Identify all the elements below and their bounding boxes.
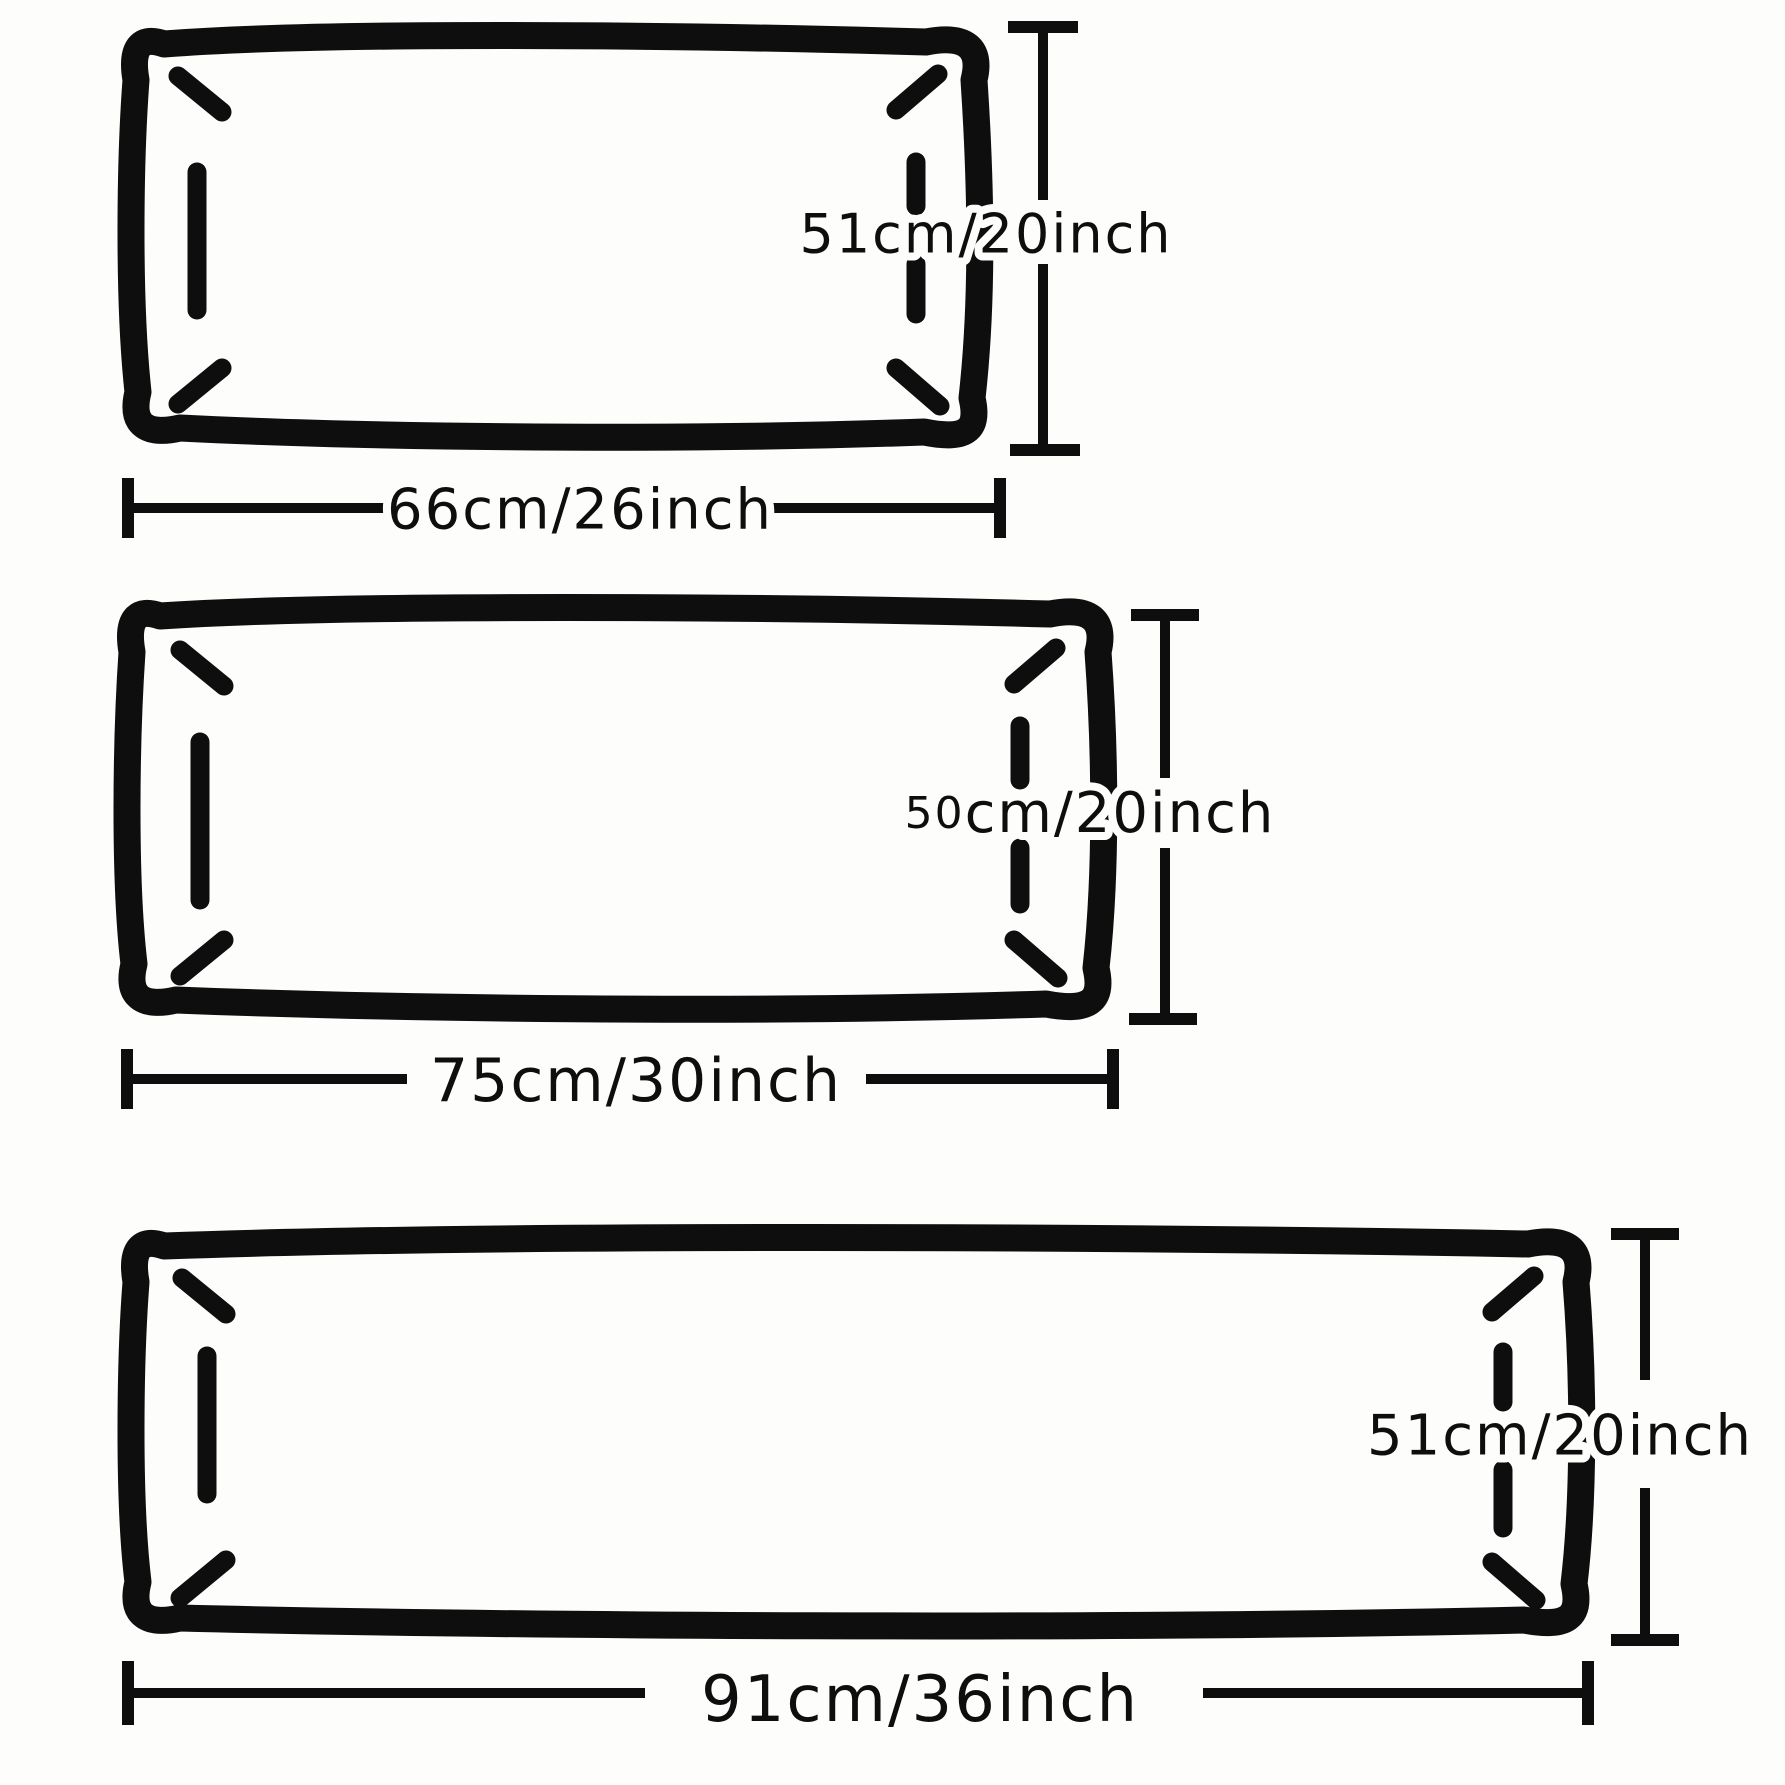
pillow-size-diagram: 51cm/20inch 66cm/26inch 50cm/20inch 75cm…: [0, 0, 1785, 1785]
pillow-3-height-dimension: 51cm/20inch: [1367, 1234, 1753, 1640]
pillow-2-width-label: 75cm/30inch: [430, 1046, 842, 1116]
pillow-1-width-dimension: 66cm/26inch: [128, 478, 1000, 543]
pillow-2-corner-tick-top-right: [1014, 648, 1056, 684]
pillow-3-width-label: 91cm/36inch: [701, 1663, 1139, 1737]
pillow-2-corner-tick-top-left: [180, 650, 224, 686]
pillow-2-corner-tick-bottom-left: [180, 940, 224, 976]
pillow-3-corner-tick-top-left: [182, 1278, 226, 1314]
pillow-1-corner-tick-bottom-left: [178, 368, 222, 404]
pillow-2-corner-tick-bottom-right: [1014, 940, 1058, 978]
pillow-3-width-dimension: 91cm/36inch: [128, 1661, 1588, 1737]
pillow-1-height-label: 51cm/20inch: [799, 203, 1172, 266]
pillow-1-corner-tick-top-right: [896, 74, 938, 110]
pillow-1-width-label: 66cm/26inch: [387, 478, 773, 543]
pillow-3-outline: [131, 1238, 1582, 1626]
pillow-3-corner-tick-bottom-right: [1492, 1562, 1536, 1600]
pillow-2-width-dimension: 75cm/30inch: [127, 1046, 1113, 1116]
pillow-2-height-label-rest: cm/20inch: [965, 781, 1276, 846]
pillow-1-corner-tick-bottom-right: [896, 368, 940, 406]
pillow-3-height-label: 51cm/20inch: [1367, 1404, 1753, 1469]
pillow-1-corner-tick-top-left: [178, 76, 222, 112]
pillow-2-height-label-prefix: 50: [905, 788, 965, 839]
pillow-3: [131, 1238, 1582, 1626]
pillow-3-corner-tick-bottom-left: [180, 1560, 226, 1598]
diagram-canvas: 51cm/20inch 66cm/26inch 50cm/20inch 75cm…: [0, 0, 1785, 1785]
pillow-2-height-label: 50cm/20inch: [905, 781, 1276, 846]
pillow-3-corner-tick-top-right: [1492, 1276, 1534, 1312]
